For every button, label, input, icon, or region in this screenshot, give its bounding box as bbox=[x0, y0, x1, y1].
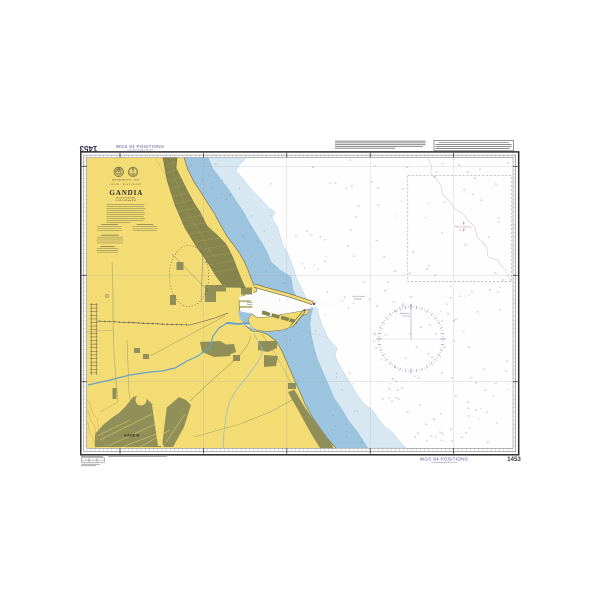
svg-text:SPAIN – EAST COAST: SPAIN – EAST COAST bbox=[110, 183, 141, 186]
svg-text:1453: 1453 bbox=[507, 456, 521, 463]
svg-text:GANDIA: GANDIA bbox=[109, 189, 143, 197]
svg-text:WGS 84 POSITIONS: WGS 84 POSITIONS bbox=[420, 457, 468, 462]
svg-text:de Gandia: de Gandia bbox=[402, 316, 410, 318]
svg-text:SCALE 1:12 500 at lat 39°00': SCALE 1:12 500 at lat 39°00' bbox=[116, 199, 137, 202]
svg-text:Grau de: Grau de bbox=[247, 302, 253, 304]
svg-text:Gandia: Gandia bbox=[247, 304, 252, 306]
svg-text:can be plotted directly on thi: can be plotted directly on this chart bbox=[431, 461, 458, 464]
svg-text:(dredged): (dredged) bbox=[354, 298, 362, 300]
svg-text:WGS 84 POSITIONS: WGS 84 POSITIONS bbox=[116, 144, 164, 149]
svg-text:GANDIA: GANDIA bbox=[124, 433, 140, 437]
